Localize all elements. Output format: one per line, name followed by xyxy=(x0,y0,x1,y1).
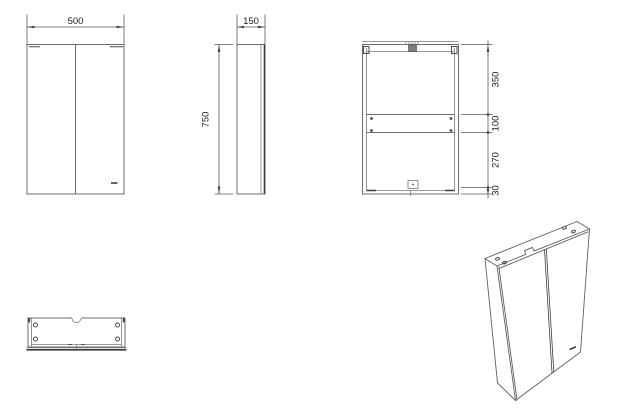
dim-front-width: 500 xyxy=(27,15,124,45)
back-view: 350 100 270 30 xyxy=(363,41,502,199)
dim-label-side-height: 750 xyxy=(201,112,212,128)
dim-back-segments: 350 100 270 30 xyxy=(461,41,502,199)
doors-top-edge xyxy=(500,232,589,268)
bottom-view xyxy=(27,317,127,350)
door-gap-line xyxy=(545,249,554,373)
top-hole xyxy=(495,257,500,261)
screw-hole xyxy=(370,129,373,132)
front-right-and-bottom-edge xyxy=(516,229,590,401)
dim-label-front-width: 500 xyxy=(68,16,84,27)
mounting-bracket xyxy=(406,42,418,52)
drawing-svg: 500 150 750 xyxy=(0,0,620,413)
dim-side-depth: 150 xyxy=(237,15,265,45)
technical-drawing-canvas: 500 150 750 xyxy=(0,0,620,413)
fixing-hole xyxy=(116,337,120,341)
screw-hole xyxy=(450,117,453,120)
dim-side-height: 750 xyxy=(201,45,234,195)
front-view: 500 xyxy=(27,15,124,195)
perspective-view xyxy=(485,222,590,401)
fixing-hole xyxy=(34,337,38,341)
fixing-hole xyxy=(116,323,120,327)
shelf xyxy=(367,115,455,133)
screw-hole xyxy=(450,129,453,132)
perspective-door-handle xyxy=(570,347,577,350)
side-view: 150 750 xyxy=(201,15,266,195)
back-outline xyxy=(363,45,459,195)
dim-label-back-350: 350 xyxy=(491,72,502,88)
screw-hole xyxy=(370,117,373,120)
fixing-hole xyxy=(34,323,38,327)
top-face xyxy=(485,222,590,267)
dim-label-back-100: 100 xyxy=(491,116,502,132)
back-inner-walls xyxy=(367,48,455,191)
top-hole xyxy=(562,226,567,230)
dim-label-back-270: 270 xyxy=(491,152,502,168)
notch-mask xyxy=(72,317,82,322)
left-door-edge xyxy=(499,267,517,400)
bottom-fitting-box xyxy=(408,181,418,189)
dim-label-back-30: 30 xyxy=(491,185,502,196)
top-hole xyxy=(571,230,576,234)
dim-label-side-depth: 150 xyxy=(243,16,259,27)
